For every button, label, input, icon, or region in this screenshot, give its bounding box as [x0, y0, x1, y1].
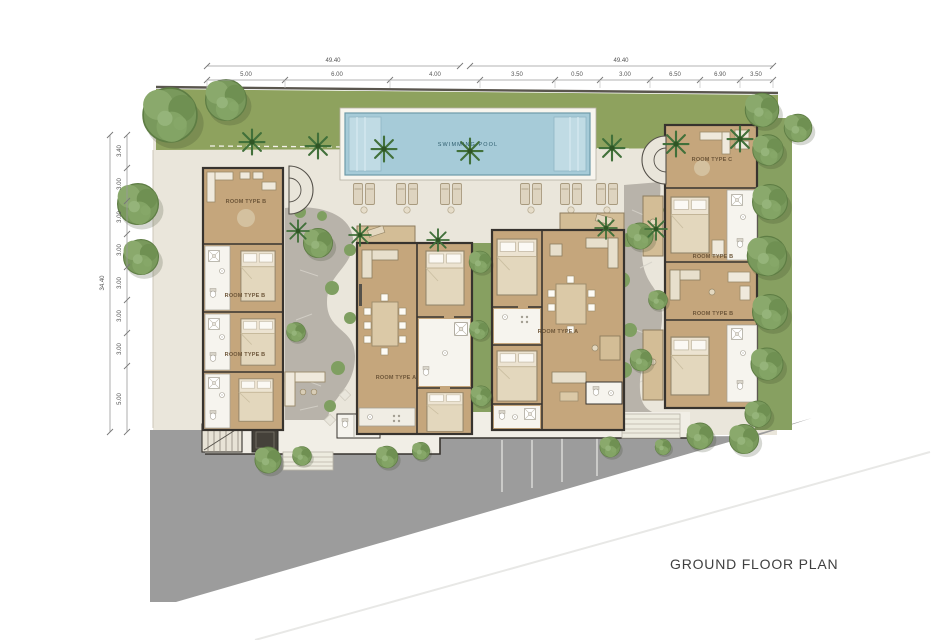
building-mid-left	[357, 226, 472, 434]
lounger-icon	[597, 184, 606, 205]
palm-tree-icon	[427, 229, 449, 251]
room-label-right-1: ROOM TYPE C	[692, 157, 733, 163]
dining-table-icon	[372, 302, 398, 346]
bed-icon	[426, 251, 464, 305]
palm-tree-icon	[372, 137, 397, 162]
bed-icon	[671, 337, 709, 395]
dim-segment: 0.50	[571, 72, 583, 78]
bed-icon	[497, 351, 537, 401]
room-label-right-2: ROOM TYPE B	[693, 254, 734, 260]
site-plan-drawing	[0, 0, 936, 640]
dim-segment: 4.00	[429, 72, 441, 78]
building-mid-right	[492, 213, 624, 430]
dim-segment: 3.50	[511, 72, 523, 78]
bed-icon	[671, 197, 709, 253]
palm-tree-icon	[600, 136, 625, 161]
room-label-left-1: ROOM TYPE B	[226, 199, 267, 205]
plan-title: GROUND FLOOR PLAN	[670, 556, 838, 572]
palm-tree-icon	[595, 217, 617, 239]
palm-tree-icon	[645, 218, 667, 240]
lounger-icon	[533, 184, 542, 205]
dim-segment: 3.40	[117, 145, 123, 157]
lounger-icon	[354, 184, 363, 205]
bed-icon	[427, 393, 463, 432]
bed-icon	[241, 319, 275, 365]
dim-total-side: 34.40	[100, 275, 106, 290]
pool-label: SWIMMING POOL	[438, 142, 498, 148]
dim-segment: 3.00	[619, 72, 631, 78]
dim-segment: 3.00	[117, 211, 123, 223]
dim-segment: 3.50	[750, 72, 762, 78]
palm-tree-icon	[240, 130, 265, 155]
dim-segment: 3.00	[117, 310, 123, 322]
palm-tree-icon	[306, 134, 331, 159]
palm-tree-icon	[287, 220, 309, 242]
dim-segment: 6.00	[331, 72, 343, 78]
dim-segment: 3.00	[117, 178, 123, 190]
room-label-mid-left: ROOM TYPE A	[376, 375, 417, 381]
room-label-mid-right: ROOM TYPE A	[538, 329, 579, 335]
palm-tree-icon	[664, 132, 689, 157]
lounger-icon	[397, 184, 406, 205]
lounger-icon	[521, 184, 530, 205]
dining-table-icon	[556, 284, 586, 324]
bed-icon	[239, 379, 273, 421]
dim-segment: 5.00	[117, 393, 123, 405]
lounger-icon	[409, 184, 418, 205]
dim-segment: 3.00	[117, 277, 123, 289]
lounger-icon	[573, 184, 582, 205]
dim-segment: 5.00	[240, 72, 252, 78]
dim-segment: 6.90	[714, 72, 726, 78]
dim-segment: 3.00	[117, 244, 123, 256]
dim-total-right: 49.40	[613, 58, 628, 64]
dim-total-left: 49.40	[325, 58, 340, 64]
bed-icon	[497, 239, 537, 295]
dim-segment: 3.00	[117, 343, 123, 355]
lounger-icon	[366, 184, 375, 205]
room-label-left-2: ROOM TYPE B	[225, 293, 266, 299]
desk-icon	[600, 336, 620, 360]
room-label-right-3: ROOM TYPE B	[693, 311, 734, 317]
lounger-icon	[561, 184, 570, 205]
palm-tree-icon	[728, 127, 753, 152]
lounger-icon	[453, 184, 462, 205]
palm-tree-icon	[349, 224, 371, 246]
dim-segment: 6.50	[669, 72, 681, 78]
lounger-icon	[441, 184, 450, 205]
ground-floor-plan: 49.40 49.40 5.00 6.00 4.00 3.50 0.50 3.0…	[0, 0, 936, 640]
room-label-left-3: ROOM TYPE B	[225, 352, 266, 358]
lounger-icon	[609, 184, 618, 205]
